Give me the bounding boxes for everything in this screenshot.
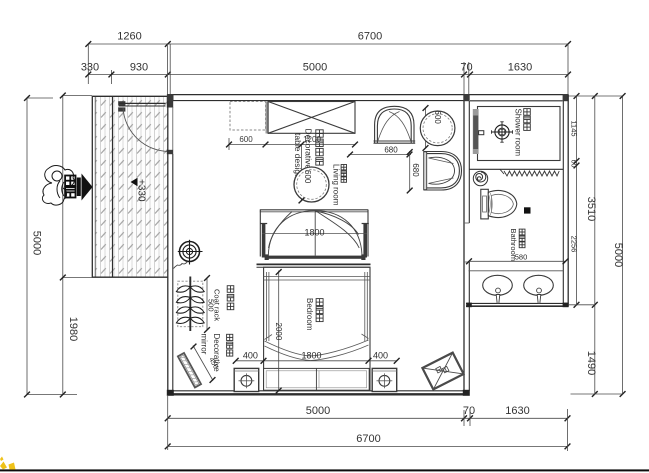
svg-text:5000: 5000 — [306, 405, 330, 417]
svg-text:Decorative: Decorative — [212, 334, 221, 373]
svg-text:6700: 6700 — [356, 433, 380, 445]
svg-text:1145: 1145 — [570, 120, 579, 136]
svg-text:680: 680 — [384, 145, 398, 154]
svg-text:6700: 6700 — [358, 31, 382, 43]
svg-text:70: 70 — [460, 62, 472, 74]
svg-text:70: 70 — [463, 405, 475, 417]
svg-text:600: 600 — [239, 135, 253, 144]
svg-text:5000: 5000 — [31, 231, 43, 255]
svg-text:1630: 1630 — [508, 62, 532, 74]
svg-text:930: 930 — [130, 62, 148, 74]
svg-text:400: 400 — [243, 350, 258, 360]
svg-text:680: 680 — [411, 163, 420, 177]
svg-text:580: 580 — [515, 253, 528, 262]
svg-text:60: 60 — [570, 160, 577, 168]
svg-text:400: 400 — [373, 350, 388, 360]
svg-text:Living room: Living room — [332, 164, 341, 206]
svg-text:5000: 5000 — [303, 62, 327, 74]
svg-text:+330: +330 — [136, 179, 147, 202]
svg-text:Coat rack: Coat rack — [213, 289, 222, 321]
svg-text:1980: 1980 — [67, 317, 79, 341]
svg-text:1630: 1630 — [505, 405, 529, 417]
svg-text:330: 330 — [81, 62, 99, 74]
svg-text:Decorative: Decorative — [304, 129, 314, 170]
svg-text:2000: 2000 — [274, 323, 283, 341]
svg-text:600: 600 — [303, 170, 312, 184]
svg-text:3510: 3510 — [585, 197, 597, 221]
svg-text:mirror: mirror — [200, 334, 209, 355]
svg-text:1800: 1800 — [301, 350, 321, 360]
svg-text:Shower room: Shower room — [514, 109, 523, 157]
svg-text:Bedroom: Bedroom — [305, 298, 314, 331]
svg-text:1490: 1490 — [585, 351, 597, 375]
svg-text:2256: 2256 — [570, 236, 579, 253]
svg-text:5000: 5000 — [612, 243, 624, 267]
svg-text:1260: 1260 — [117, 31, 141, 43]
svg-text:1800: 1800 — [304, 227, 324, 237]
svg-text:600: 600 — [433, 111, 442, 125]
